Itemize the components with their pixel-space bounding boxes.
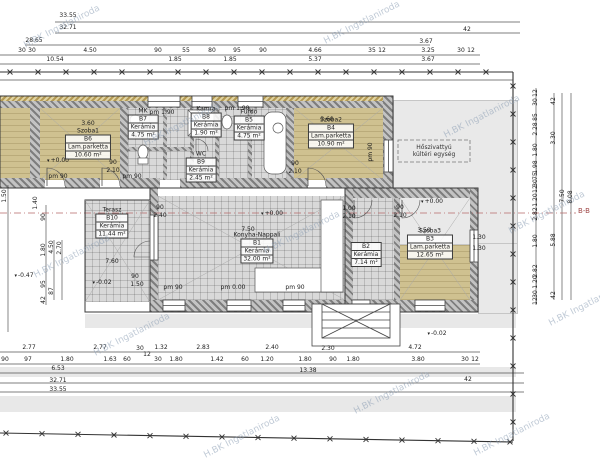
room-code: B6 [66,136,110,143]
dimension-label: 2.40 [153,213,166,219]
room-name: MK [128,108,159,115]
dimension-label: 1.30 [472,246,485,252]
room-code: B3 [408,236,452,243]
room-name: Konyha-Nappali [233,232,280,239]
room-area: 10.60 m² [66,151,110,159]
room-name: Szoba3 [407,228,453,235]
dimension-label: 12 [467,48,475,54]
dimension-label: 90 [396,205,404,211]
dimension-label: 60 [241,357,249,363]
dimension-label: 12 [533,297,539,305]
labels-layer: 33.5532.7128.653.674230304.5090558095904… [0,0,600,462]
room-label: B2Kerámia7.14 m² [351,242,382,268]
room-label: FürdőB5Kerámia4.75 m² [234,109,265,142]
dimension-label: 90 [156,205,164,211]
dimension-label: 2.40 [265,345,278,351]
room-code: B7 [129,116,158,123]
room-info-box: B6Lam.parketta10.60 m² [65,135,111,160]
room-floor: Kerámia [241,247,272,255]
dimension-label: 1.80 [533,234,539,247]
dimension-label: 1.20 [533,275,539,288]
dimension-label: 2.77 [22,345,35,351]
room-floor: Kerámia [192,121,221,129]
dimension-label: 3.67 [419,39,432,45]
dimension-label: pm 90 [48,174,67,180]
room-label: Szoba2B4Lam.parketta10.90 m² [308,117,354,150]
dimension-label: pm 90 [285,285,304,291]
room-info-box: B10Kerámia11.44 m² [95,214,128,239]
room-name: Szoba1 [65,128,111,135]
dimension-label: 3.30 [551,131,557,144]
room-name: Fürdő [234,109,265,116]
dimension-label: 30 [533,98,539,106]
dimension-label: 1.63 [103,357,116,363]
dimension-label: 5.88 [551,233,557,246]
room-name: WC [186,151,217,158]
dimension-label: 1.42 [210,357,223,363]
dimension-label: 80 [208,48,216,54]
room-info-box: B8Kerámia1.90 m² [191,113,222,138]
dimension-label: 3.60 [81,121,94,127]
dimension-label: 4.50 [83,48,96,54]
dimension-label: 2.10 [106,168,119,174]
room-area: 4.75 m² [235,132,264,140]
dimension-label: 32.71 [49,378,66,384]
room-info-box: B4Lam.parketta10.90 m² [308,124,354,149]
dimension-label: 12 [471,357,479,363]
dimension-label: 1.00 [342,206,355,212]
dimension-label: 5.37 [308,57,321,63]
room-code: B4 [309,125,353,132]
dimension-label: 1.30 [472,235,485,241]
dimension-label: 1.50 [2,189,8,202]
dimension-label: 3.67 [421,57,434,63]
level-marker: +0.00 [421,199,443,205]
dimension-label: 1.20 [260,357,273,363]
dimension-label: 30 [461,357,469,363]
room-floor: Kerámia [187,166,216,174]
dimension-label: 1.80 [41,243,47,256]
dimension-label: 60 [123,357,131,363]
dimension-label: 6.53 [51,366,64,372]
dimension-label: 2.83 [196,345,209,351]
dimension-label: 1.50 [130,282,143,288]
dimension-label: 85 [533,113,539,121]
dimension-label: 97 [24,357,32,363]
dimension-label: 12 [143,352,151,358]
dimension-label: 1.40 [33,196,39,209]
dimension-label: pm 90 [122,174,141,180]
dimension-label: 90 [1,357,9,363]
room-name: Kamra [191,106,222,113]
dimension-label: 90 [154,48,162,54]
room-floor: Kerámia [129,123,158,131]
dimension-label: 7.50 [560,189,566,202]
dimension-label: pm 90 [163,285,182,291]
dimension-label: 35 [368,48,376,54]
room-area: 4.75 m² [129,131,158,139]
dimension-label: 30 [457,48,465,54]
room-floor: Lam.parketta [66,143,110,151]
dimension-label: 33.55 [59,13,76,19]
dimension-label: 90 [291,161,299,167]
dimension-label: 12 [533,185,539,193]
dimension-label: 4.72 [408,345,421,351]
room-area: 10.90 m² [309,140,353,148]
room-info-box: B3Lam.parketta12.65 m² [407,235,453,260]
dimension-label: 3.25 [421,48,434,54]
dimension-label: 30 [28,48,36,54]
room-area: 1.90 m² [192,129,221,137]
dimension-label: 12 [533,89,539,97]
room-info-box: B9Kerámia2.45 m² [186,158,217,183]
level-marker: -0.02 [92,280,111,286]
dimension-label: pm 90 [368,142,374,161]
room-code: B10 [96,215,127,222]
level-marker: -0.47 [14,273,33,279]
dimension-label: 30 [18,48,26,54]
dimension-label: 1.32 [154,345,167,351]
dimension-label: 2.77 [93,345,106,351]
dimension-label: 33.55 [49,387,66,393]
dimension-label: 55 [182,48,190,54]
room-code: B9 [187,159,216,166]
room-floor: Kerámia [96,222,127,230]
room-label: Konyha-NappaliB1Kerámia32.00 m² [233,232,280,265]
floor-plan-canvas: 33.5532.7128.653.674230304.5090558095904… [0,0,600,462]
room-label: KamraB8Kerámia1.90 m² [191,106,222,139]
dimension-label: 2.10 [288,169,301,175]
dimension-label: 90 [259,48,267,54]
dimension-label: 1.85 [223,57,236,63]
room-info-box: B2Kerámia7.14 m² [351,242,382,267]
dimension-label: 32.71 [59,25,76,31]
room-label: Szoba1B6Lam.parketta10.60 m² [65,128,111,161]
dimension-label: 95 [233,48,241,54]
dimension-label: 1.80 [298,357,311,363]
dimension-label: 2.28 [533,122,539,135]
room-code: B2 [352,243,381,250]
dimension-label: 10.54 [46,57,63,63]
room-area: 2.45 m² [187,174,216,182]
dimension-label: 2.70 [57,241,63,254]
room-floor: Kerámia [235,124,264,132]
dimension-label: 90 [131,274,139,280]
room-name: Terasz [95,207,128,214]
room-floor: Lam.parketta [408,243,452,251]
dimension-label: 90 [41,213,47,221]
room-label: WCB9Kerámia2.45 m² [186,151,217,184]
dimension-label: 1.20 [533,193,539,206]
dimension-label: 90 [109,160,117,166]
room-name: Szoba2 [308,117,354,124]
room-area: 7.14 m² [352,258,381,266]
dimension-label: 4.50 [49,240,55,253]
dimension-label: 3.80 [411,357,424,363]
dimension-label: 4.66 [308,48,321,54]
dimension-label: 95 [41,280,47,288]
room-label: TeraszB10Kerámia11.44 m² [95,207,128,240]
dimension-label: 2.10 [393,213,406,219]
room-label: Szoba3B3Lam.parketta12.65 m² [407,228,453,261]
dimension-label: 28.65 [25,38,42,44]
room-area: 12.65 m² [408,251,452,259]
dimension-label: 8.08 [568,190,574,203]
dimension-label: 1.80 [169,357,182,363]
section-marker-label: B-B [578,207,590,215]
dimension-label: 1.80 [60,357,73,363]
level-marker: -0.02 [427,331,446,337]
dimension-label: 7.60 [105,259,118,265]
dimension-label: 42 [551,291,557,299]
room-info-box: B5Kerámia4.75 m² [234,116,265,141]
room-label: MKB7Kerámia4.75 m² [128,108,159,141]
dimension-label: 30 [154,357,162,363]
room-code: B5 [235,117,264,124]
room-info-box: B1Kerámia32.00 m² [240,239,273,264]
dimension-label: 42 [464,377,472,383]
room-floor: Lam.parketta [309,132,353,140]
room-code: B8 [192,114,221,121]
dimension-label: 42 [463,27,471,33]
dimension-label: pm 0.00 [221,285,246,291]
dimension-label: 2.82 [533,207,539,220]
level-marker: +0.00 [261,211,283,217]
room-info-box: B7Kerámia4.75 m² [128,115,159,140]
dimension-label: 1.85 [168,57,181,63]
dimension-label: 1.80 [533,143,539,156]
dimension-label: 1.80 [346,357,359,363]
room-area: 32.00 m² [241,255,272,263]
dimension-label: 87 [49,287,55,295]
dimension-label: 42 [41,296,47,304]
dimension-label: 13.38 [299,368,316,374]
dimension-label: 2.30 [321,346,334,352]
room-floor: Kerámia [352,250,381,258]
dimension-label: 90 [329,357,337,363]
dimension-label: 12 [378,48,386,54]
room-area: 11.44 m² [96,230,127,238]
room-code: B1 [241,240,272,247]
dimension-label: 42 [551,97,557,105]
dimension-label: 2.10 [342,214,355,220]
